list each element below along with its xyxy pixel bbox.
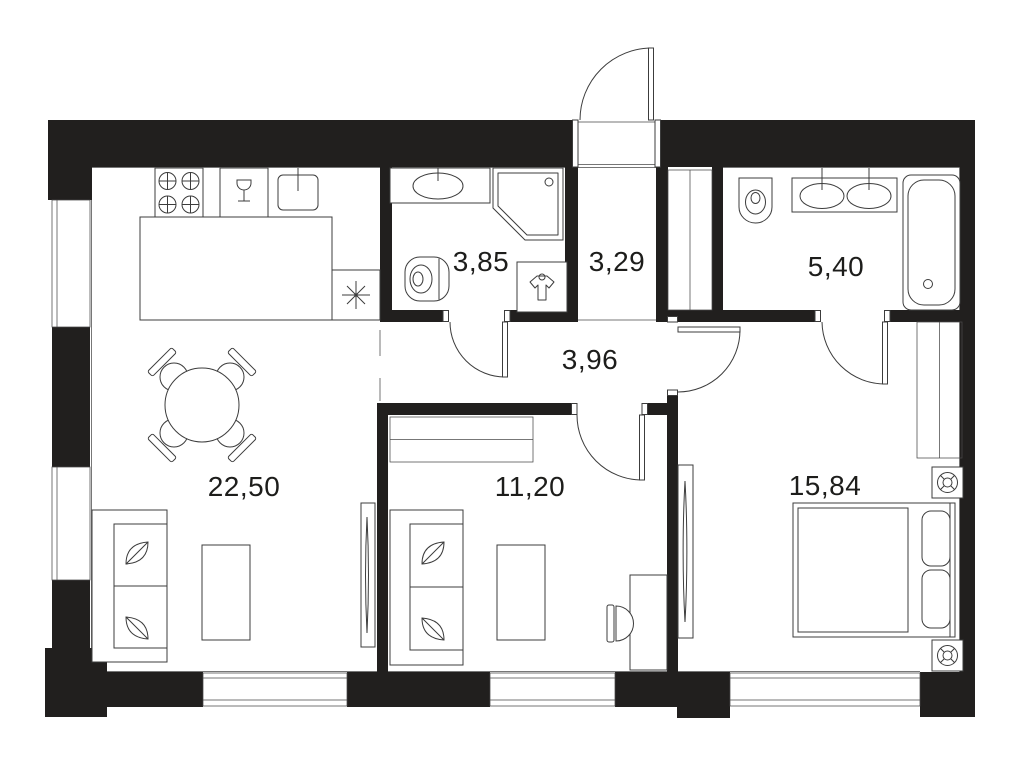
room-area-label-bathroom-ensuite: 5,40	[808, 251, 865, 283]
toilet-icon	[405, 257, 449, 301]
dining-set-icon	[148, 348, 257, 463]
bathroom-ensuite-door	[815, 311, 890, 385]
bathroom-zone	[390, 168, 567, 312]
pillow-icon	[922, 570, 950, 628]
washing-machine-icon	[517, 262, 567, 312]
double-sink-icon	[792, 168, 897, 212]
bedroom-master-door	[668, 317, 741, 396]
dining-table-icon	[165, 368, 239, 442]
window-left-upper	[52, 200, 90, 327]
window-left-lower	[52, 467, 90, 580]
tv-icon	[678, 465, 693, 638]
window-bedroom-master	[730, 673, 920, 706]
room-area-label-bedroom-small: 11,20	[495, 471, 566, 503]
kitchen-counter	[140, 217, 332, 320]
bedroom-small-zone	[390, 417, 667, 670]
room-area-label-entrance-hall: 3,29	[589, 246, 646, 278]
bed-icon	[793, 503, 955, 637]
sofa-icon	[390, 510, 463, 665]
toilet-icon	[739, 178, 772, 223]
wardrobe-icon	[390, 417, 533, 462]
floor-plan-drawing	[0, 0, 1024, 768]
kitchen-sink-icon	[278, 168, 318, 210]
coffee-table-icon	[202, 545, 250, 640]
room-area-label-corridor: 3,96	[562, 344, 619, 376]
room-area-label-bathroom: 3,85	[453, 246, 510, 278]
room-area-label-kitchen-living: 22,50	[208, 471, 281, 503]
vanity-sink-icon	[390, 168, 490, 203]
living-room-zone	[92, 348, 375, 662]
window-bedroom-small	[490, 673, 615, 706]
sofa-icon	[92, 510, 167, 662]
vent-shaft-icon	[668, 170, 712, 310]
table-icon	[497, 545, 545, 640]
nightstand-icon	[932, 640, 963, 671]
tv-icon	[361, 503, 375, 647]
room-area-label-bedroom-master: 15,84	[789, 470, 862, 502]
desk-icon	[630, 575, 667, 670]
nightstand-icon	[932, 467, 963, 498]
bathroom-door	[443, 311, 510, 378]
window-living-room	[203, 673, 347, 706]
sink-base-unit	[332, 270, 380, 320]
bathtub-icon	[903, 175, 960, 310]
bedroom-small-door	[572, 404, 648, 481]
dishwasher-icon	[220, 168, 268, 217]
radiator-icon	[917, 322, 962, 458]
bathroom-ensuite-zone	[739, 168, 960, 310]
kitchen-zone	[140, 168, 380, 320]
floor-plan: 22,50 11,20 15,84 3,85 3,29 5,40 3,96	[0, 0, 1024, 768]
shower-icon	[493, 168, 563, 240]
entrance-door	[573, 48, 661, 167]
pillow-icon	[922, 511, 950, 566]
stove-icon	[155, 168, 203, 217]
